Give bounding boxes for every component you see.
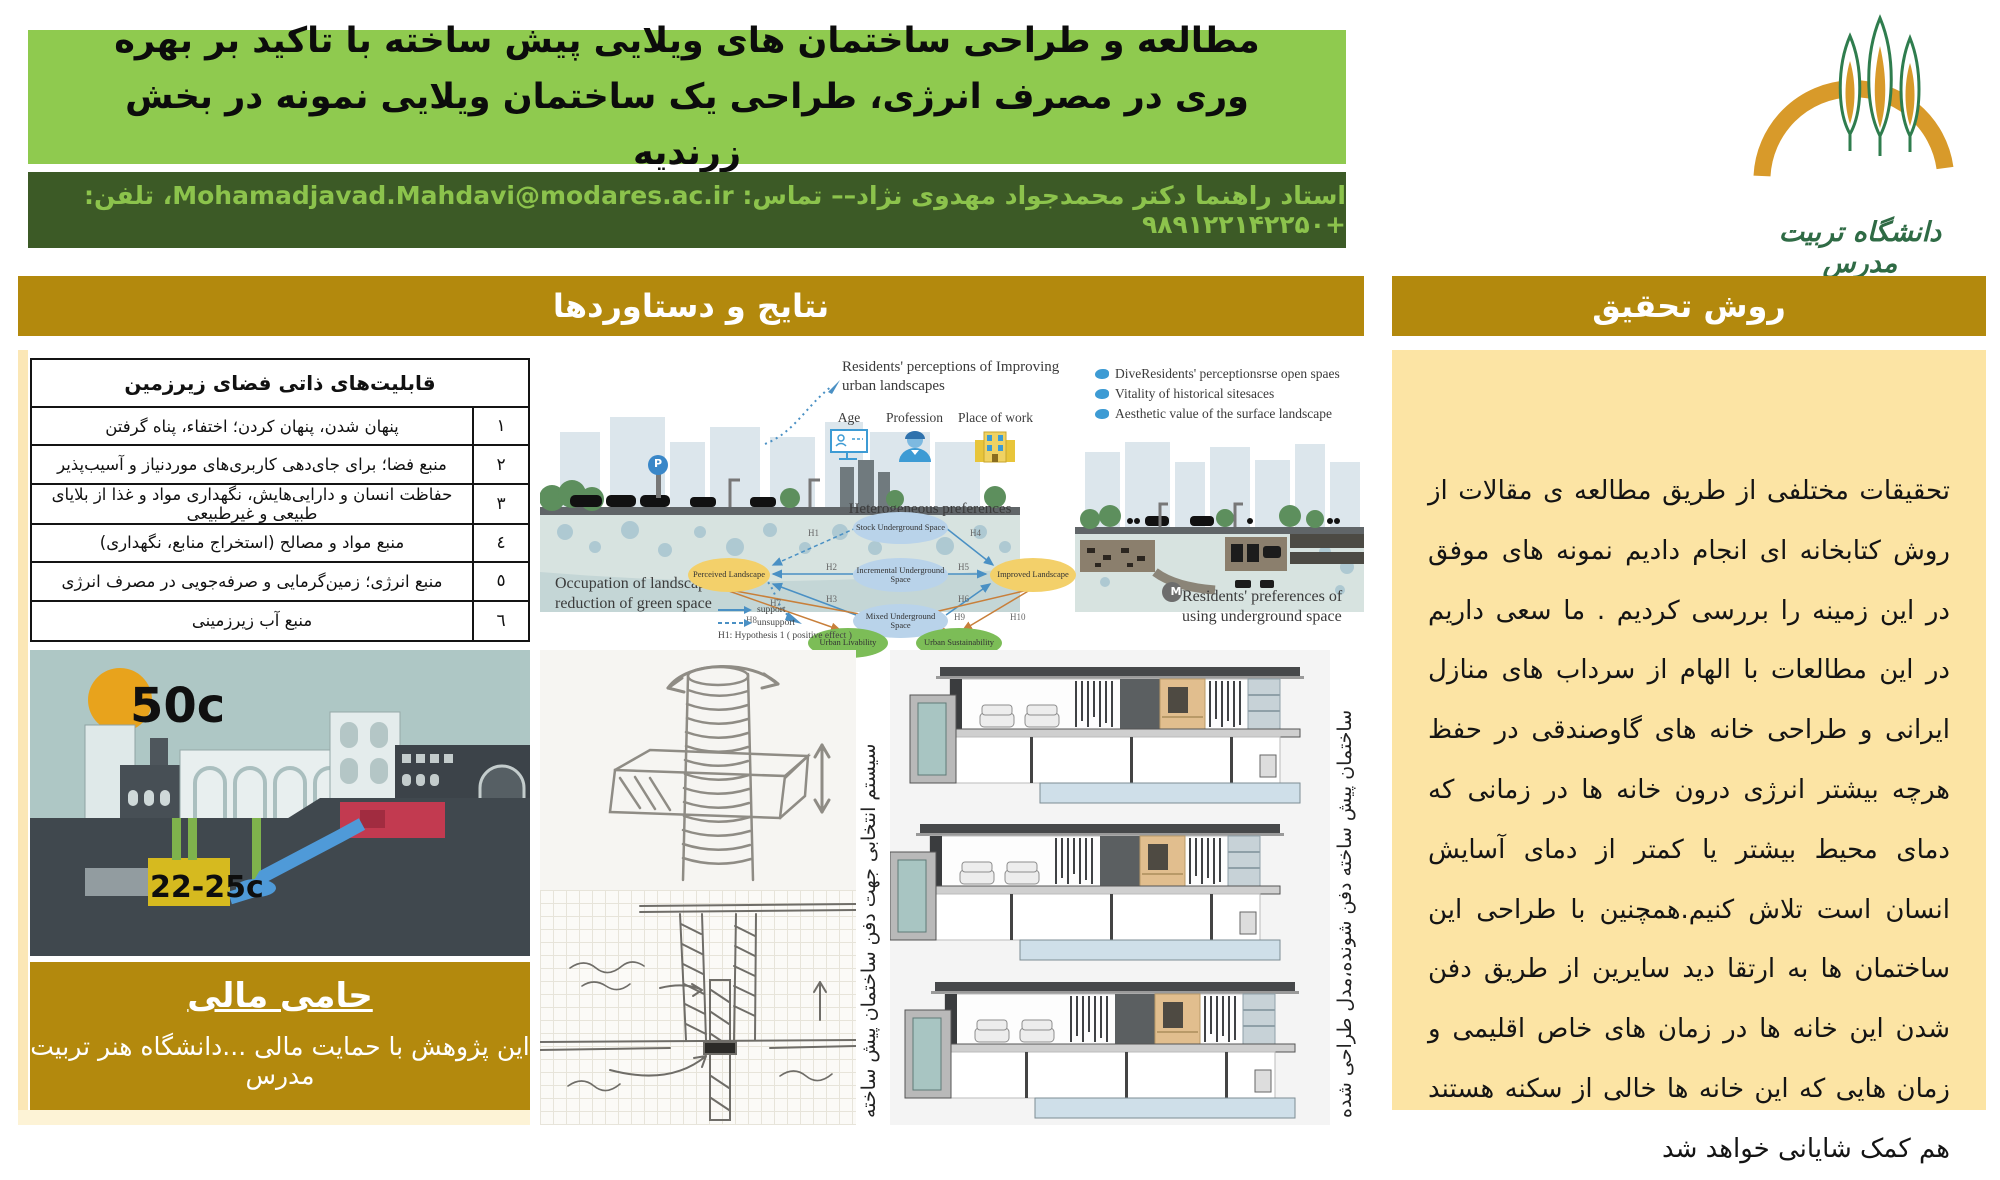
surface-temperature-label: 50c (130, 678, 225, 734)
bullet-icon (1095, 369, 1109, 379)
dashed-arrow-icon (718, 619, 752, 627)
age-label: Age (827, 410, 871, 426)
bullet-icon (1095, 409, 1109, 419)
place-of-work-label: Place of work (958, 410, 1033, 426)
method-section-body: تحقیقات مختلفی از طریق مطالعه ی مقالات ا… (1392, 350, 1986, 1110)
university-logo-emblem (1740, 6, 1980, 221)
row-number: ٦ (472, 602, 528, 640)
profession-item: Profession (886, 410, 943, 468)
foundation-sketch-paper (540, 890, 856, 1125)
hypothesis-label: H3 (826, 594, 837, 604)
villa-section-stage-3 (905, 982, 1299, 1118)
poster-title: مطالعه و طراحی ساختمان های ویلایی پیش سا… (28, 13, 1346, 181)
method-paragraph: تحقیقات مختلفی از طریق مطالعه ی مقالات ا… (1392, 350, 1986, 1180)
sponsor-box: حامی مالی این پژوهش با حمایت مالی ...دان… (30, 962, 530, 1110)
hypothesis-label: H10 (1010, 612, 1026, 622)
row-text: منبع مواد و مصالح (استخراج منابع، نگهدار… (32, 525, 472, 561)
table-row: ٥ منبع انرژی؛ زمین‌گرمایی و صرفه‌جویی در… (32, 563, 528, 601)
age-item: Age (827, 410, 871, 468)
figure-right-caption: Residents' preferences of using undergro… (1182, 587, 1360, 627)
results-section-title: نتایج و دستاوردها (553, 287, 829, 325)
university-logo: دانشگاه تربیت مدرس (1740, 6, 1980, 261)
table-row: ۱ پنهان شدن، پنهان کردن؛ اختفاء، پناه گر… (32, 408, 528, 446)
results-bottom-border (18, 1110, 530, 1125)
poster-title-band: مطالعه و طراحی ساختمان های ویلایی پیش سا… (28, 30, 1346, 164)
bullet-text: Vitality of historical sitesaces (1115, 386, 1274, 402)
burial-system-sketches (540, 650, 856, 1125)
legend-support-row: support (718, 604, 868, 617)
temperature-cross-section: 50c 22-25c (30, 650, 530, 956)
row-text: پنهان شدن، پنهان کردن؛ اختفاء، پناه گرفت… (32, 408, 472, 444)
node-perceived: Perceived Landscape (688, 558, 770, 592)
row-text: منبع فضا؛ برای جای‌دهی کاربری‌های موردنی… (32, 446, 472, 482)
logo-cypress-trees (1840, 18, 1919, 156)
foundation-detail-sketch (540, 890, 856, 1125)
method-section-header: روش تحقیق (1392, 276, 1986, 336)
row-number: ۱ (472, 408, 528, 444)
hypothesis-label: H5 (958, 562, 969, 572)
sketch-vertical-caption: سیستم انتخابی جهت دفن ساختمان پیش ساخته (858, 653, 884, 1118)
age-monitor-icon (827, 426, 871, 464)
ground-line (1075, 527, 1364, 534)
temperature-illustration (30, 650, 530, 956)
supervisor-contact-line: استاد راهنما دکتر محمدجواد مهدوی نژاد–– … (28, 181, 1346, 239)
villa-section-stage-1 (910, 667, 1304, 803)
sponsor-body: این پژوهش با حمایت مالی ...دانشگاه هنر ت… (30, 1032, 530, 1090)
legend-unsupport-label: unsupport (757, 617, 795, 630)
row-number: ٥ (472, 563, 528, 599)
underground-temperature-label: 22-25c (150, 870, 264, 905)
table-row: ٦ منبع آب زیرزمینی (32, 602, 528, 640)
hypothesis-label: H2 (826, 562, 837, 572)
workplace-building-icon (972, 426, 1018, 464)
legend-note: H1: Hypothesis 1 ( positive effect ) (718, 630, 868, 643)
profession-label: Profession (886, 410, 943, 426)
villa-sections-drawing (890, 650, 1330, 1125)
network-legend: support unsupport H1: Hypothesis 1 ( pos… (718, 604, 868, 642)
legend-unsupport-row: unsupport (718, 617, 868, 630)
screw-mechanism-sketch (540, 650, 856, 888)
table-row: ٤ منبع مواد و مصالح (استخراج منابع، نگهد… (32, 525, 528, 563)
row-text: منبع انرژی؛ زمین‌گرمایی و صرفه‌جویی در م… (32, 563, 472, 599)
parking-sign-letter: P (652, 458, 664, 470)
row-number: ۲ (472, 446, 528, 482)
figure-top-label: Residents' perceptions of Improving urba… (842, 358, 1092, 396)
bullet-text: DiveResidents' perceptionsrse open spaes (1115, 366, 1340, 382)
place-of-work-item: Place of work (958, 410, 1033, 468)
node-incremental: Incremental Underground Space (853, 558, 948, 592)
bullet-icon (1095, 389, 1109, 399)
profession-worker-icon (895, 426, 935, 464)
demographic-icons-row: Age Profession Place of work (827, 410, 1033, 468)
villa-vertical-caption: ساختمان پیش ساخته دفن شونده،مدل طراحی شد… (1334, 653, 1360, 1118)
row-number: ۳ (472, 485, 528, 523)
bullet-item: Aesthetic value of the surface landscape (1095, 406, 1364, 422)
city-cross-section-right (1075, 422, 1364, 612)
villa-section-stage-2 (890, 824, 1284, 960)
results-left-border (18, 350, 28, 1110)
row-number: ٤ (472, 525, 528, 561)
table-title: قابلیت‌های ذاتی فضای زیرزمین (32, 360, 528, 408)
legend-support-label: support (757, 604, 786, 617)
sponsor-title: حامی مالی (30, 976, 530, 1016)
bullet-text: Aesthetic value of the surface landscape (1115, 406, 1332, 422)
method-section-title: روش تحقیق (1592, 287, 1786, 325)
table-row: ۲ منبع فضا؛ برای جای‌دهی کاربری‌های مورد… (32, 446, 528, 484)
node-stock: Stock Underground Space (853, 512, 948, 544)
bullet-item: Vitality of historical sitesaces (1095, 386, 1364, 402)
hypothesis-label: H1 (808, 528, 819, 538)
hypothesis-label: H4 (970, 528, 981, 538)
urban-underground-figure: P Residents' perceptions of Improving ur… (540, 352, 1364, 662)
perception-bullets: DiveResidents' perceptionsrse open spaes… (1095, 366, 1364, 426)
solid-arrow-icon (718, 606, 752, 614)
results-section-header: نتایج و دستاوردها (18, 276, 1364, 336)
hypothesis-label: H6 (958, 594, 969, 604)
hypothesis-label: H9 (954, 612, 965, 622)
table-row: ۳ حفاظت انسان و دارایی‌هایش، نگهداری موا… (32, 485, 528, 525)
row-text: حفاظت انسان و دارایی‌هایش، نگهداری مواد … (32, 485, 472, 523)
villa-sections-panel (890, 650, 1330, 1125)
supervisor-band: استاد راهنما دکتر محمدجواد مهدوی نژاد–– … (28, 172, 1346, 248)
underground-capabilities-table: قابلیت‌های ذاتی فضای زیرزمین ۱ پنهان شدن… (30, 358, 530, 642)
bullet-item: DiveResidents' perceptionsrse open spaes (1095, 366, 1364, 382)
row-text: منبع آب زیرزمینی (32, 602, 472, 640)
university-logo-caption: دانشگاه تربیت مدرس (1740, 217, 1980, 279)
node-improved: Improved Landscape (990, 558, 1076, 592)
